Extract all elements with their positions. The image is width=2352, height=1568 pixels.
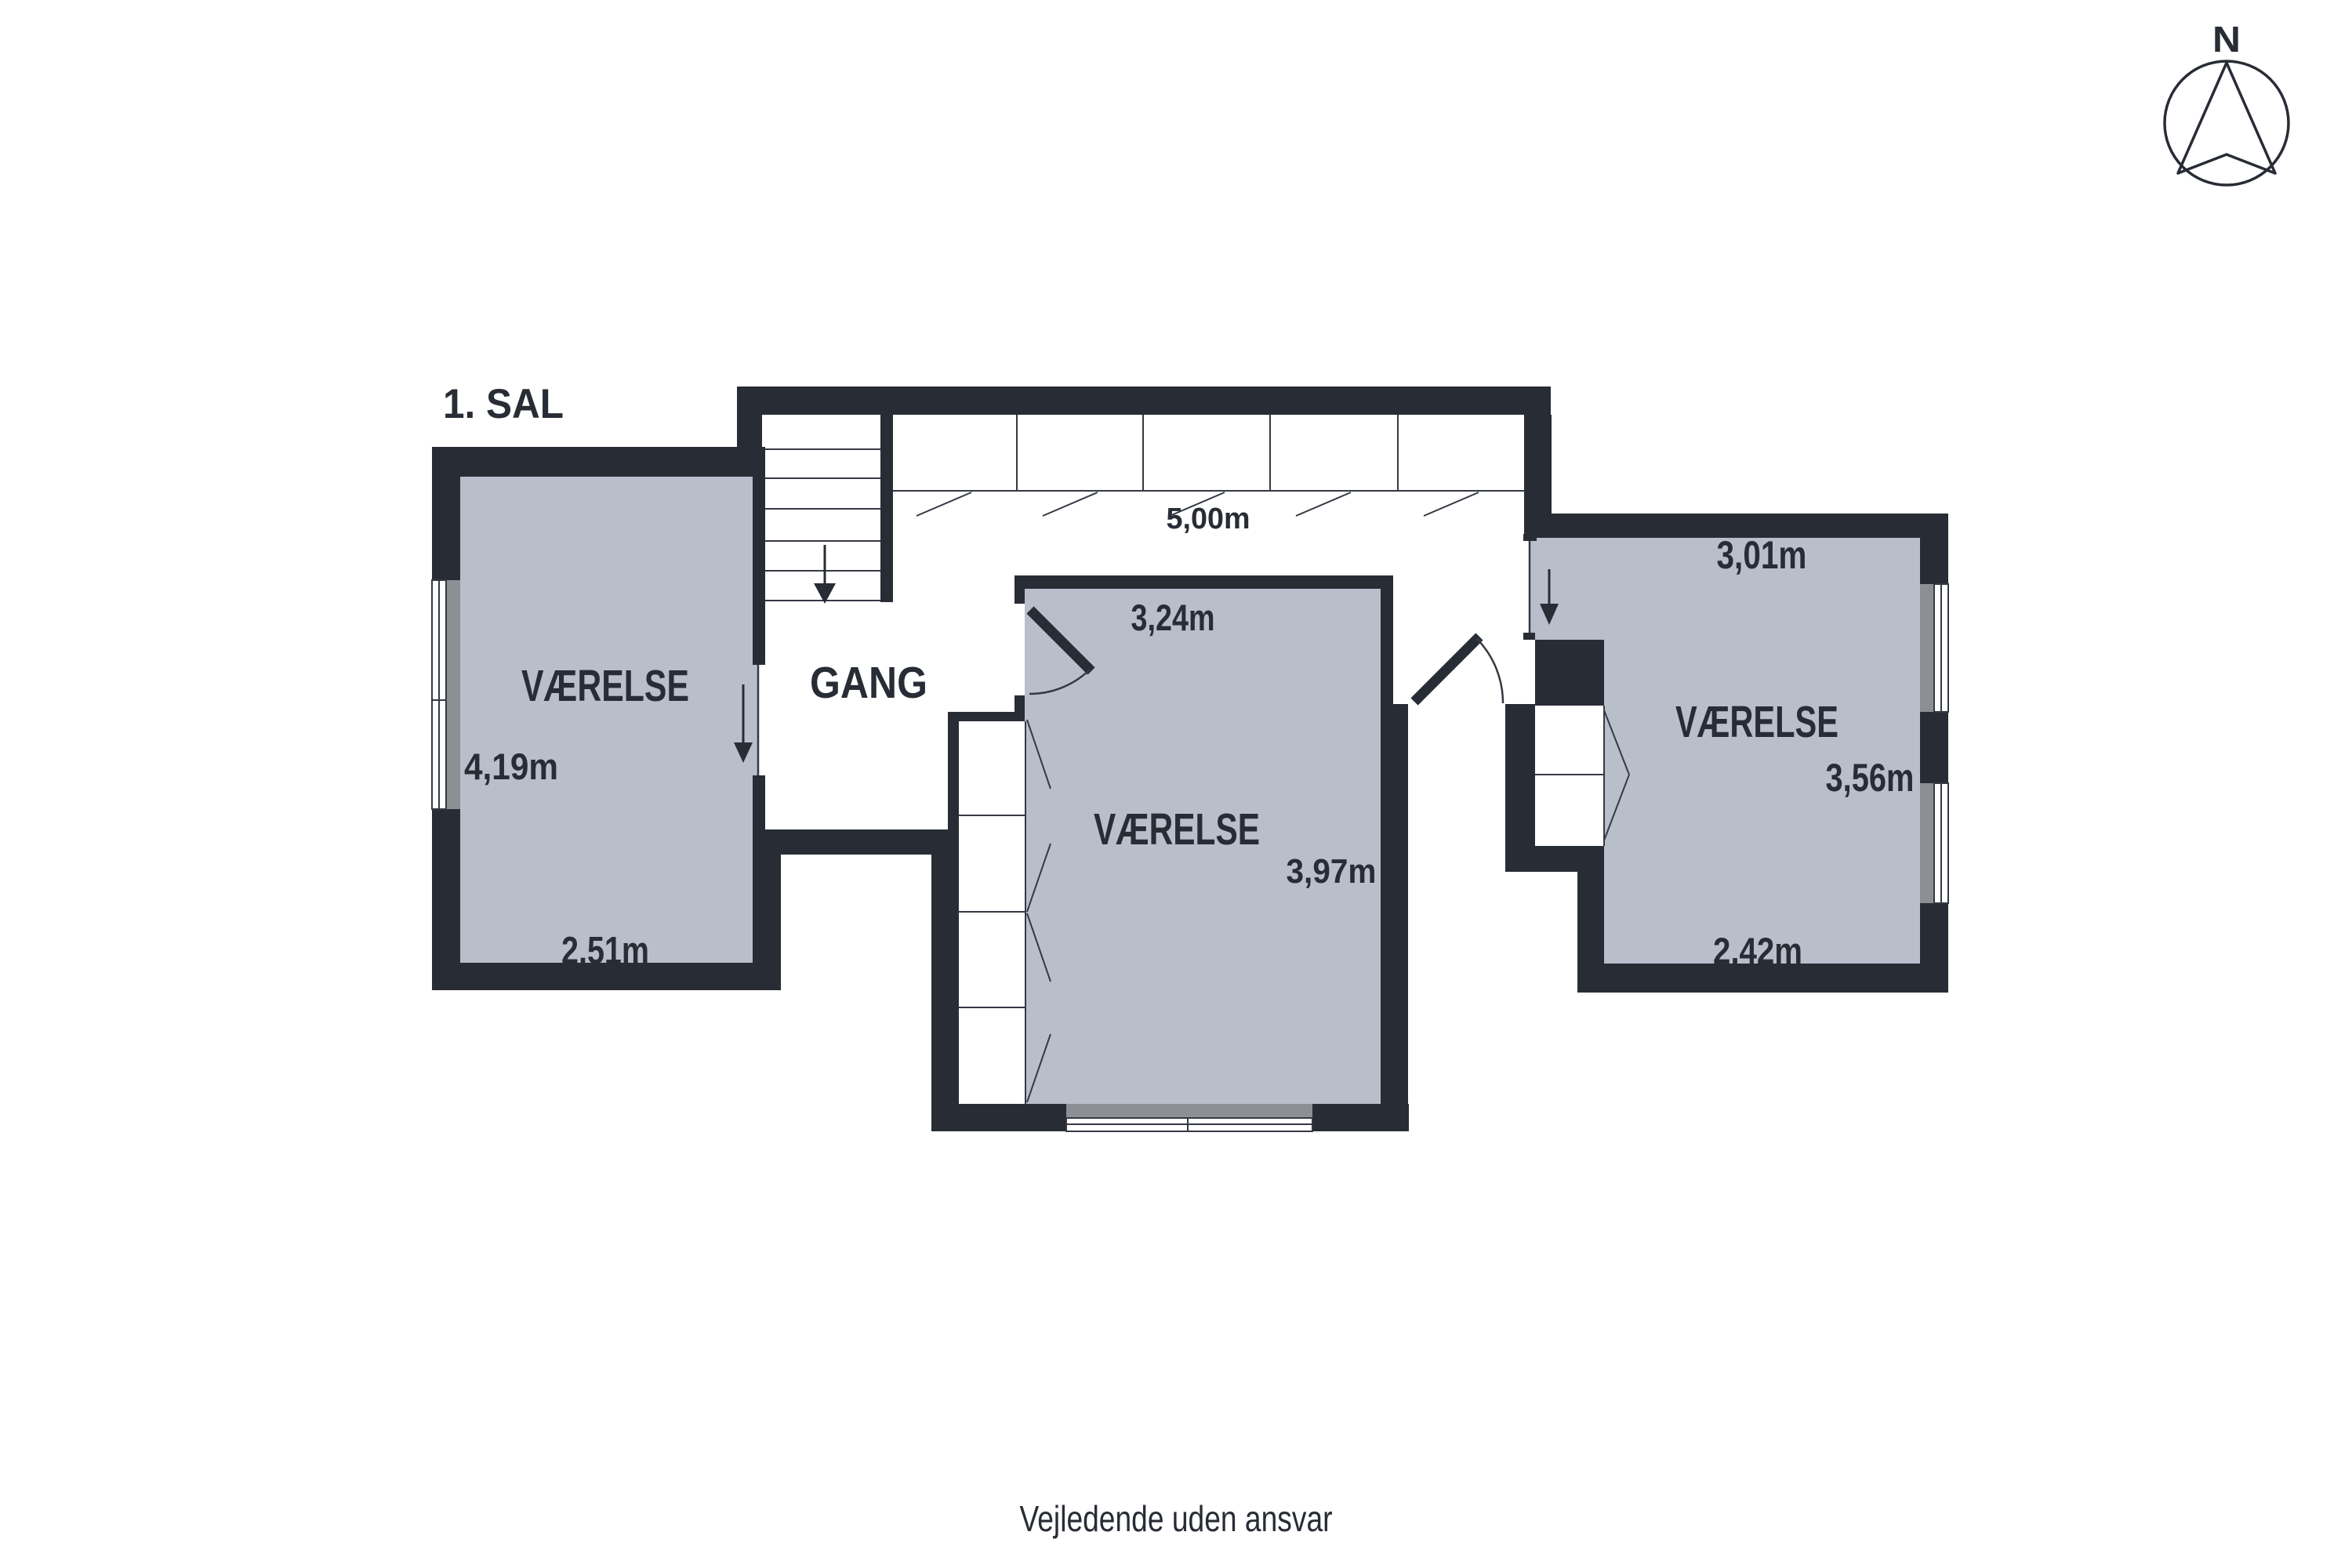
svg-text:VÆRELSE: VÆRELSE <box>521 661 689 711</box>
svg-text:3,97m: 3,97m <box>1287 852 1377 891</box>
svg-text:VÆRELSE: VÆRELSE <box>1094 804 1260 855</box>
svg-text:GANG: GANG <box>810 658 927 708</box>
svg-text:5,00m: 5,00m <box>1167 503 1250 535</box>
svg-text:Vejledende uden ansvar: Vejledende uden ansvar <box>1020 1498 1333 1539</box>
svg-text:1. SAL: 1. SAL <box>443 381 564 427</box>
svg-text:VÆRELSE: VÆRELSE <box>1675 697 1838 747</box>
svg-text:3,56m: 3,56m <box>1826 756 1915 800</box>
svg-text:N: N <box>2212 19 2241 60</box>
svg-text:3,24m: 3,24m <box>1131 597 1215 638</box>
svg-text:3,01m: 3,01m <box>1717 533 1807 577</box>
svg-text:2,42m: 2,42m <box>1713 930 1802 971</box>
svg-text:2,51m: 2,51m <box>561 930 649 972</box>
svg-text:4,19m: 4,19m <box>464 746 558 787</box>
